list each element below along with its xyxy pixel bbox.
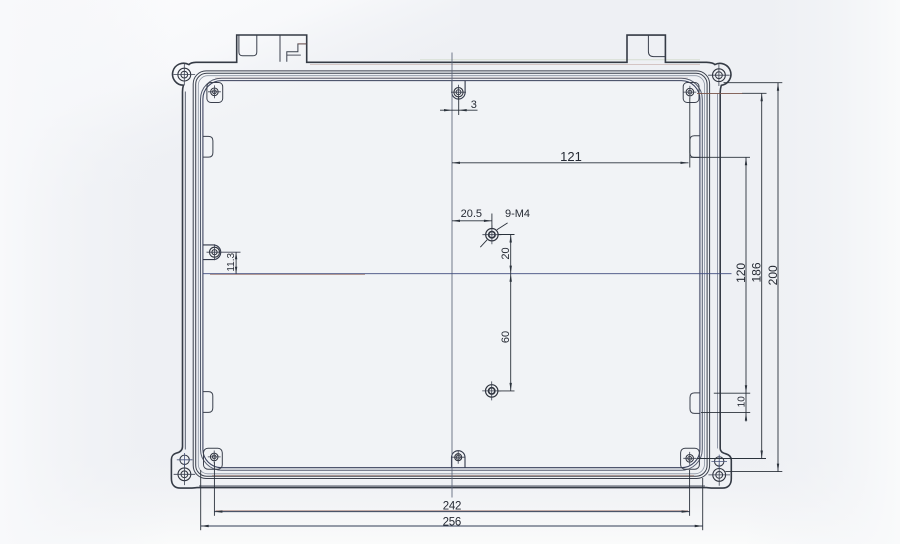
- svg-text:200: 200: [766, 265, 780, 285]
- svg-text:3: 3: [471, 99, 477, 111]
- svg-text:60: 60: [500, 331, 512, 343]
- svg-text:20: 20: [500, 247, 512, 259]
- svg-text:120: 120: [734, 263, 748, 283]
- svg-text:10: 10: [736, 396, 747, 408]
- svg-text:121: 121: [560, 149, 582, 164]
- svg-text:242: 242: [443, 500, 461, 512]
- svg-text:20.5: 20.5: [461, 208, 482, 220]
- svg-text:9-M4: 9-M4: [505, 208, 530, 220]
- svg-text:11.3: 11.3: [226, 253, 237, 272]
- svg-text:186: 186: [750, 262, 764, 282]
- svg-text:256: 256: [443, 516, 461, 528]
